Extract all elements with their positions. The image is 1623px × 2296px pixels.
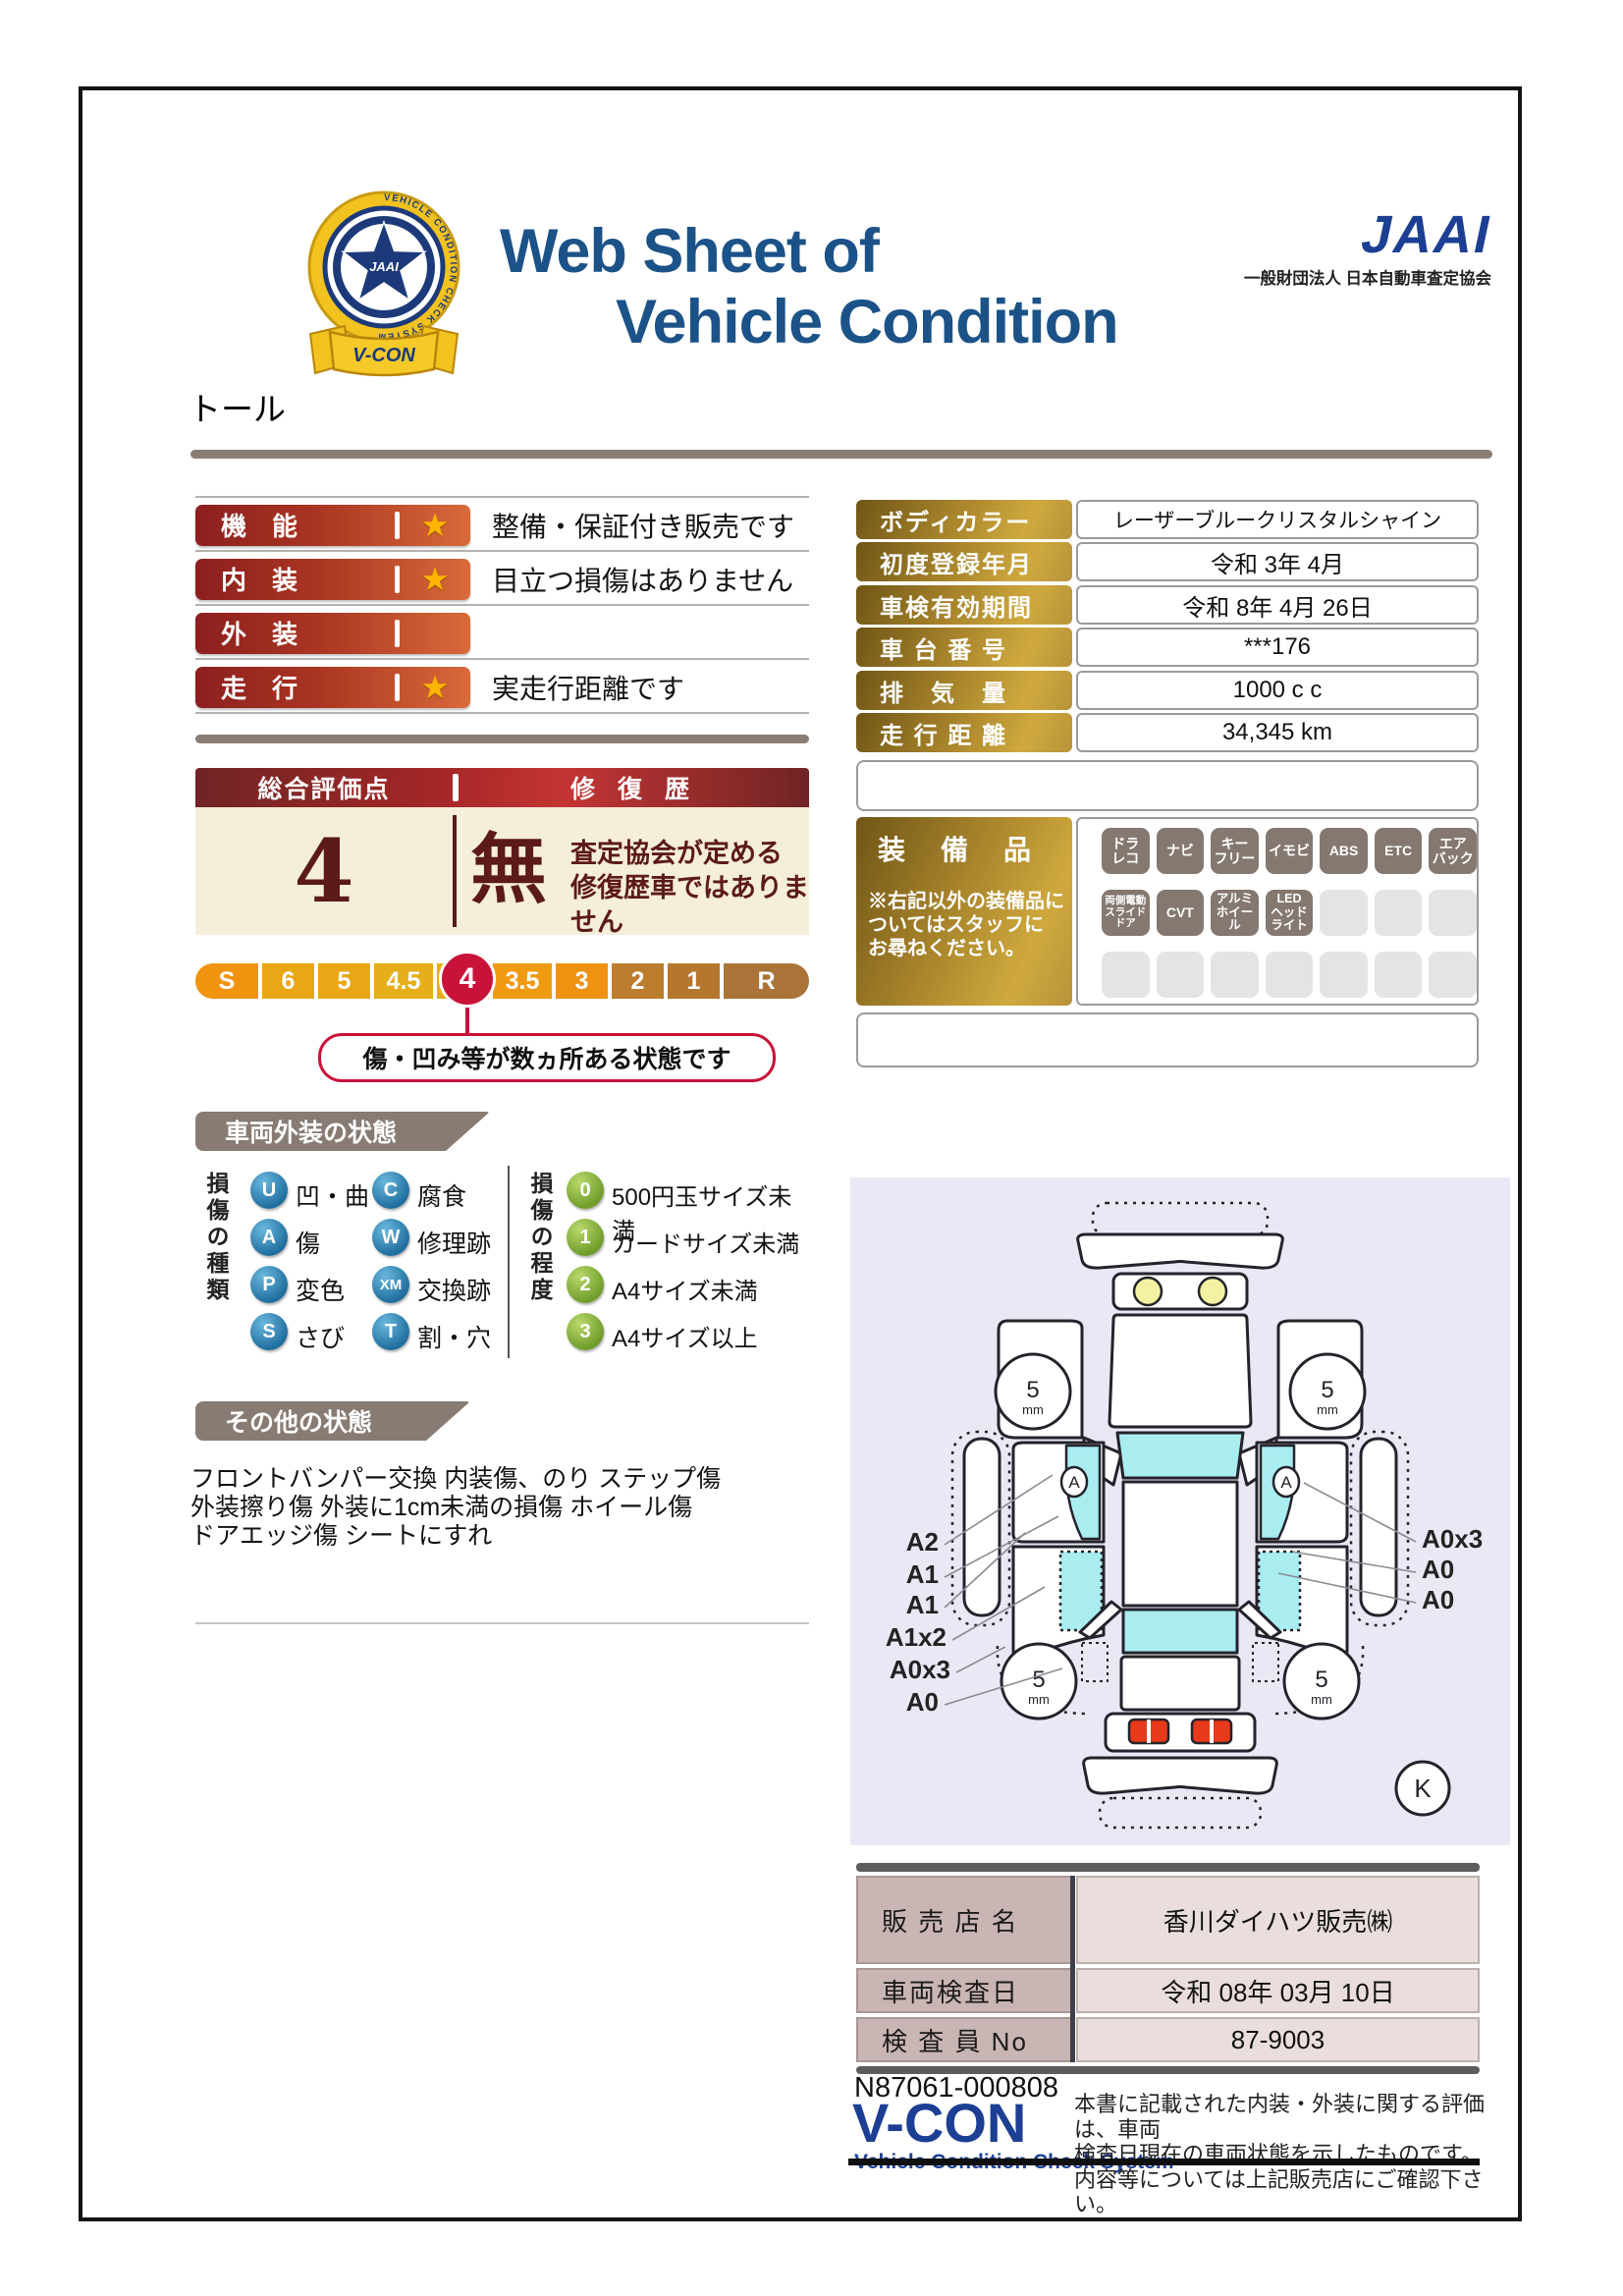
divider-line [195, 712, 809, 714]
inspector-no-label: 検 査 員 No [856, 2017, 1072, 2062]
equip-badge-alloywheel: アルミ ホイール [1211, 890, 1259, 936]
divider-line [195, 1622, 809, 1624]
sheet-border: VEHICLE CONDITION CHECK SYSTEM JAAI V-CO… [79, 86, 1522, 2221]
dealer-name-value: 香川ダイハツ販売㈱ [1076, 1876, 1480, 1964]
svg-text:mm: mm [1311, 1692, 1332, 1707]
svg-text:A0: A0 [1422, 1585, 1454, 1614]
rating-row-exterior: 外 装 [195, 604, 809, 660]
rating-desc: 整備・保証付き販売です [492, 506, 794, 545]
degree-2: 2 [567, 1266, 604, 1303]
damage-degree-label: 損傷の程度 [523, 1172, 557, 1304]
detail-value-bodycolor: レーザーブルークリスタルシャイン [1076, 500, 1479, 539]
degree-desc: A4サイズ以上 [612, 1319, 758, 1353]
equipment-title: 装 備 品 [878, 829, 1072, 868]
rating-badge: 機 能 ★ [195, 505, 470, 546]
grade-pill-1: 1 [664, 963, 720, 999]
inspection-date-value: 令和 08年 03月 10日 [1076, 1968, 1480, 2013]
empty-box [856, 1012, 1479, 1067]
rating-badge: 内 装 ★ [195, 559, 470, 600]
grade-pill-35: 3.5 [489, 963, 552, 999]
damage-kind-name: 交換跡 [417, 1272, 491, 1307]
grade-pill-r: R [720, 963, 809, 999]
jaai-subtitle: 一般財団法人 日本自動車査定協会 [1153, 265, 1491, 289]
damage-code-u: U [250, 1172, 288, 1209]
equipment-note: ※右記以外の装備品に ついてはスタッフに お尋ねください。 [868, 890, 1072, 960]
equip-badge-empty [1157, 952, 1205, 998]
svg-text:5: 5 [1026, 1377, 1039, 1403]
damage-kind-name: さび [296, 1319, 345, 1354]
car-damage-diagram: 5 mm 5 mm 5 mm 5 mm A A [850, 1177, 1510, 1845]
damage-labels-left: A2 A1 A1 A1x2 A0x3 A0 [886, 1527, 950, 1717]
corner-mark: K [1396, 1762, 1449, 1815]
equip-badge-empty [1211, 952, 1259, 998]
score-header: 総合評価点 修 復 歴 [195, 768, 809, 807]
emblem-star-label: JAAI [369, 259, 399, 274]
svg-text:A0: A0 [1422, 1555, 1454, 1584]
divider-rule [190, 450, 1492, 459]
damage-code-s: S [250, 1313, 288, 1350]
jaai-block: JAAI 一般財団法人 日本自動車査定協会 [1153, 208, 1491, 289]
empty-box [856, 760, 1479, 811]
score-divider [453, 815, 457, 927]
equip-badge-etc: ETC [1375, 828, 1423, 874]
star-icon: ★ [400, 505, 470, 546]
svg-text:A1: A1 [906, 1559, 939, 1589]
headlight-icon [1199, 1278, 1226, 1305]
damage-code-w: W [372, 1219, 409, 1256]
equipment-row [1102, 952, 1477, 998]
equip-badge-empty [1375, 890, 1423, 936]
page-title: Web Sheet of Vehicle Condition [500, 216, 1118, 357]
damage-labels-right: A0x3 A0 A0 [1422, 1524, 1483, 1614]
damage-code-c: C [372, 1172, 409, 1209]
grade-pill-45: 4.5 [370, 963, 433, 999]
svg-text:mm: mm [1022, 1402, 1044, 1417]
score-body: 4 無 査定協会が定める 修復歴車ではありません [195, 807, 809, 935]
equipment-badges: ドラ レコ ナビ キー フリー イモビ ABS ETC エア バック 両側電動 … [1076, 817, 1479, 1006]
jaai-logo: JAAI [1357, 208, 1497, 261]
svg-text:A2: A2 [906, 1527, 939, 1557]
divider-rule [195, 735, 809, 743]
svg-text:A1x2: A1x2 [886, 1622, 947, 1652]
damage-code-p: P [250, 1266, 288, 1303]
detail-value-firstreg: 令和 3年 4月 [1076, 542, 1479, 581]
detail-label-bodycolor: ボディカラー [856, 500, 1072, 539]
damage-code-t: T [372, 1313, 409, 1350]
score-header-right: 修 復 歴 [459, 768, 809, 807]
equip-badge-abs: ABS [1320, 828, 1368, 874]
svg-text:mm: mm [1028, 1692, 1050, 1707]
headlight-icon [1134, 1278, 1162, 1305]
table-top-bar [856, 1863, 1480, 1872]
equip-badge-empty [1266, 952, 1314, 998]
degree-3: 3 [567, 1313, 604, 1350]
grade-pill-2: 2 [608, 963, 664, 999]
section-exterior-title: 車両外装の状態 [195, 1112, 490, 1151]
table-divider [1070, 1876, 1075, 2062]
rating-label: 走 行 [195, 669, 395, 705]
equip-badge-navi: ナビ [1157, 828, 1205, 874]
overall-score: 4 [195, 807, 453, 935]
rating-label: 内 装 [195, 561, 395, 597]
page-title-line1: Web Sheet of [500, 216, 1118, 287]
repair-history-value: 無 [470, 821, 547, 919]
svg-text:A0x3: A0x3 [1422, 1524, 1483, 1554]
grade-pill-3: 3 [552, 963, 608, 999]
equip-badge-powerslidedoor: 両側電動 スライド ドア [1102, 890, 1150, 936]
vehicle-condition-sheet: VEHICLE CONDITION CHECK SYSTEM JAAI V-CO… [0, 0, 1623, 2296]
damage-kind-name: 割・穴 [417, 1319, 491, 1354]
svg-text:5: 5 [1321, 1377, 1333, 1403]
detail-value-inspection: 令和 8年 4月 26日 [1076, 585, 1479, 625]
damage-kind-name: 凹・曲 [296, 1177, 369, 1213]
grade-pill-5: 5 [314, 963, 370, 999]
rating-badge: 外 装 [195, 613, 470, 654]
equip-badge-ledheadlight: LED ヘッド ライト [1266, 890, 1314, 936]
svg-text:A0: A0 [906, 1687, 939, 1717]
equip-badge-empty [1429, 952, 1477, 998]
svg-text:A: A [1280, 1473, 1292, 1492]
svg-text:A1: A1 [906, 1590, 939, 1619]
damage-kind-name: 腐食 [417, 1177, 466, 1213]
equip-badge-airbag: エア バック [1429, 828, 1477, 874]
svg-text:5: 5 [1315, 1667, 1327, 1693]
rating-label: 機 能 [195, 507, 395, 543]
svg-text:A: A [1068, 1473, 1080, 1492]
vehicle-name: トール [189, 383, 286, 430]
rating-desc: 目立つ損傷はありません [492, 560, 793, 599]
equip-badge-dashcam: ドラ レコ [1102, 828, 1150, 874]
selected-grade-stem [465, 1006, 469, 1035]
page-title-line2: Vehicle Condition [616, 287, 1118, 357]
other-state-text: フロントバンパー交換 内装傷、のり ステップ傷 外装擦り傷 外装に1cm未満の損… [190, 1465, 721, 1551]
repair-history-desc: 査定協会が定める 修復歴車ではありません [570, 837, 809, 940]
svg-text:K: K [1414, 1774, 1432, 1803]
grade-pill-s: S [195, 963, 258, 999]
svg-text:5: 5 [1032, 1667, 1045, 1693]
vcon-emblem: VEHICLE CONDITION CHECK SYSTEM JAAI V-CO… [291, 189, 477, 390]
damage-kind-label: 損傷の種類 [199, 1172, 233, 1304]
damage-kind-name: 傷 [296, 1225, 320, 1260]
equipment-panel: 装 備 品 ※右記以外の装備品に ついてはスタッフに お尋ねください。 [856, 817, 1072, 1006]
damage-kind-name: 変色 [296, 1272, 345, 1307]
equip-badge-immobilizer: イモビ [1266, 828, 1314, 874]
inspection-date-label: 車両検査日 [856, 1968, 1072, 2013]
detail-label-firstreg: 初度登録年月 [856, 542, 1072, 581]
rating-row-mileage: 走 行 ★ 実走行距離です [195, 658, 809, 714]
detail-value-mileage: 34,345 km [1076, 713, 1479, 752]
inspector-no-value: 87-9003 [1076, 2017, 1480, 2062]
equip-badge-empty [1429, 890, 1477, 936]
degree-desc: カードサイズ未満 [612, 1225, 799, 1259]
selected-grade-marker: 4 [439, 951, 496, 1008]
vcon-logo: V-CON [852, 2096, 1026, 2151]
detail-value-chassis: ***176 [1076, 628, 1479, 667]
svg-text:A0x3: A0x3 [890, 1655, 950, 1684]
footer-rule [848, 2159, 1480, 2165]
rating-row-interior: 内 装 ★ 目立つ損傷はありません [195, 550, 809, 606]
degree-0: 0 [567, 1172, 604, 1209]
star-icon: ★ [400, 667, 470, 708]
detail-label-chassis: 車 台 番 号 [856, 628, 1072, 667]
damage-code-xm: XM [372, 1266, 409, 1303]
rating-desc: 実走行距離です [492, 668, 684, 707]
equipment-row: ドラ レコ ナビ キー フリー イモビ ABS ETC エア バック [1102, 828, 1477, 874]
degree-desc: A4サイズ未満 [612, 1272, 758, 1306]
damage-code-a: A [250, 1219, 288, 1256]
equipment-row: 両側電動 スライド ドア CVT アルミ ホイール LED ヘッド ライト [1102, 890, 1477, 936]
legend-divider [508, 1166, 510, 1358]
grade-scale: S 6 5 4.5 3.5 3 2 1 R [195, 963, 809, 999]
degree-1: 1 [567, 1219, 604, 1256]
emblem-ribbon-label: V-CON [352, 345, 415, 366]
rating-badge: 走 行 ★ [195, 667, 470, 708]
equip-badge-empty [1320, 890, 1368, 936]
equip-badge-cvt: CVT [1157, 890, 1205, 936]
detail-label-mileage: 走 行 距 離 [856, 713, 1072, 752]
damage-kind-name: 修理跡 [417, 1225, 491, 1260]
detail-value-displacement: 1000 c c [1076, 671, 1479, 710]
score-header-left: 総合評価点 [195, 768, 453, 807]
svg-text:mm: mm [1317, 1402, 1338, 1417]
section-other-title: その他の状態 [195, 1401, 470, 1441]
dealer-name-label: 販 売 店 名 [856, 1876, 1072, 1964]
equip-badge-empty [1320, 952, 1368, 998]
grade-callout: 傷・凹み等が数ヵ所ある状態です [318, 1033, 776, 1082]
badge-divider [395, 620, 400, 647]
detail-label-inspection: 車検有効期間 [856, 585, 1072, 625]
rating-row-function: 機 能 ★ 整備・保証付き販売です [195, 496, 809, 552]
footer-note: 本書に記載された内装・外装に関する評価は、車両 検査日現在の車両状態を示したもの… [1074, 2092, 1518, 2217]
equip-badge-empty [1102, 952, 1150, 998]
equip-badge-empty [1375, 952, 1423, 998]
car-body [1078, 1203, 1283, 1828]
equip-badge-keyfree: キー フリー [1211, 828, 1259, 874]
damage-legend: 損傷の種類 U 凹・曲 C 腐食 A 傷 W 修理跡 P 変色 XM 交換跡 S… [195, 1166, 809, 1362]
rating-label: 外 装 [195, 615, 395, 651]
grade-pill-6: 6 [258, 963, 314, 999]
star-icon: ★ [400, 559, 470, 600]
detail-label-displacement: 排 気 量 [856, 671, 1072, 710]
